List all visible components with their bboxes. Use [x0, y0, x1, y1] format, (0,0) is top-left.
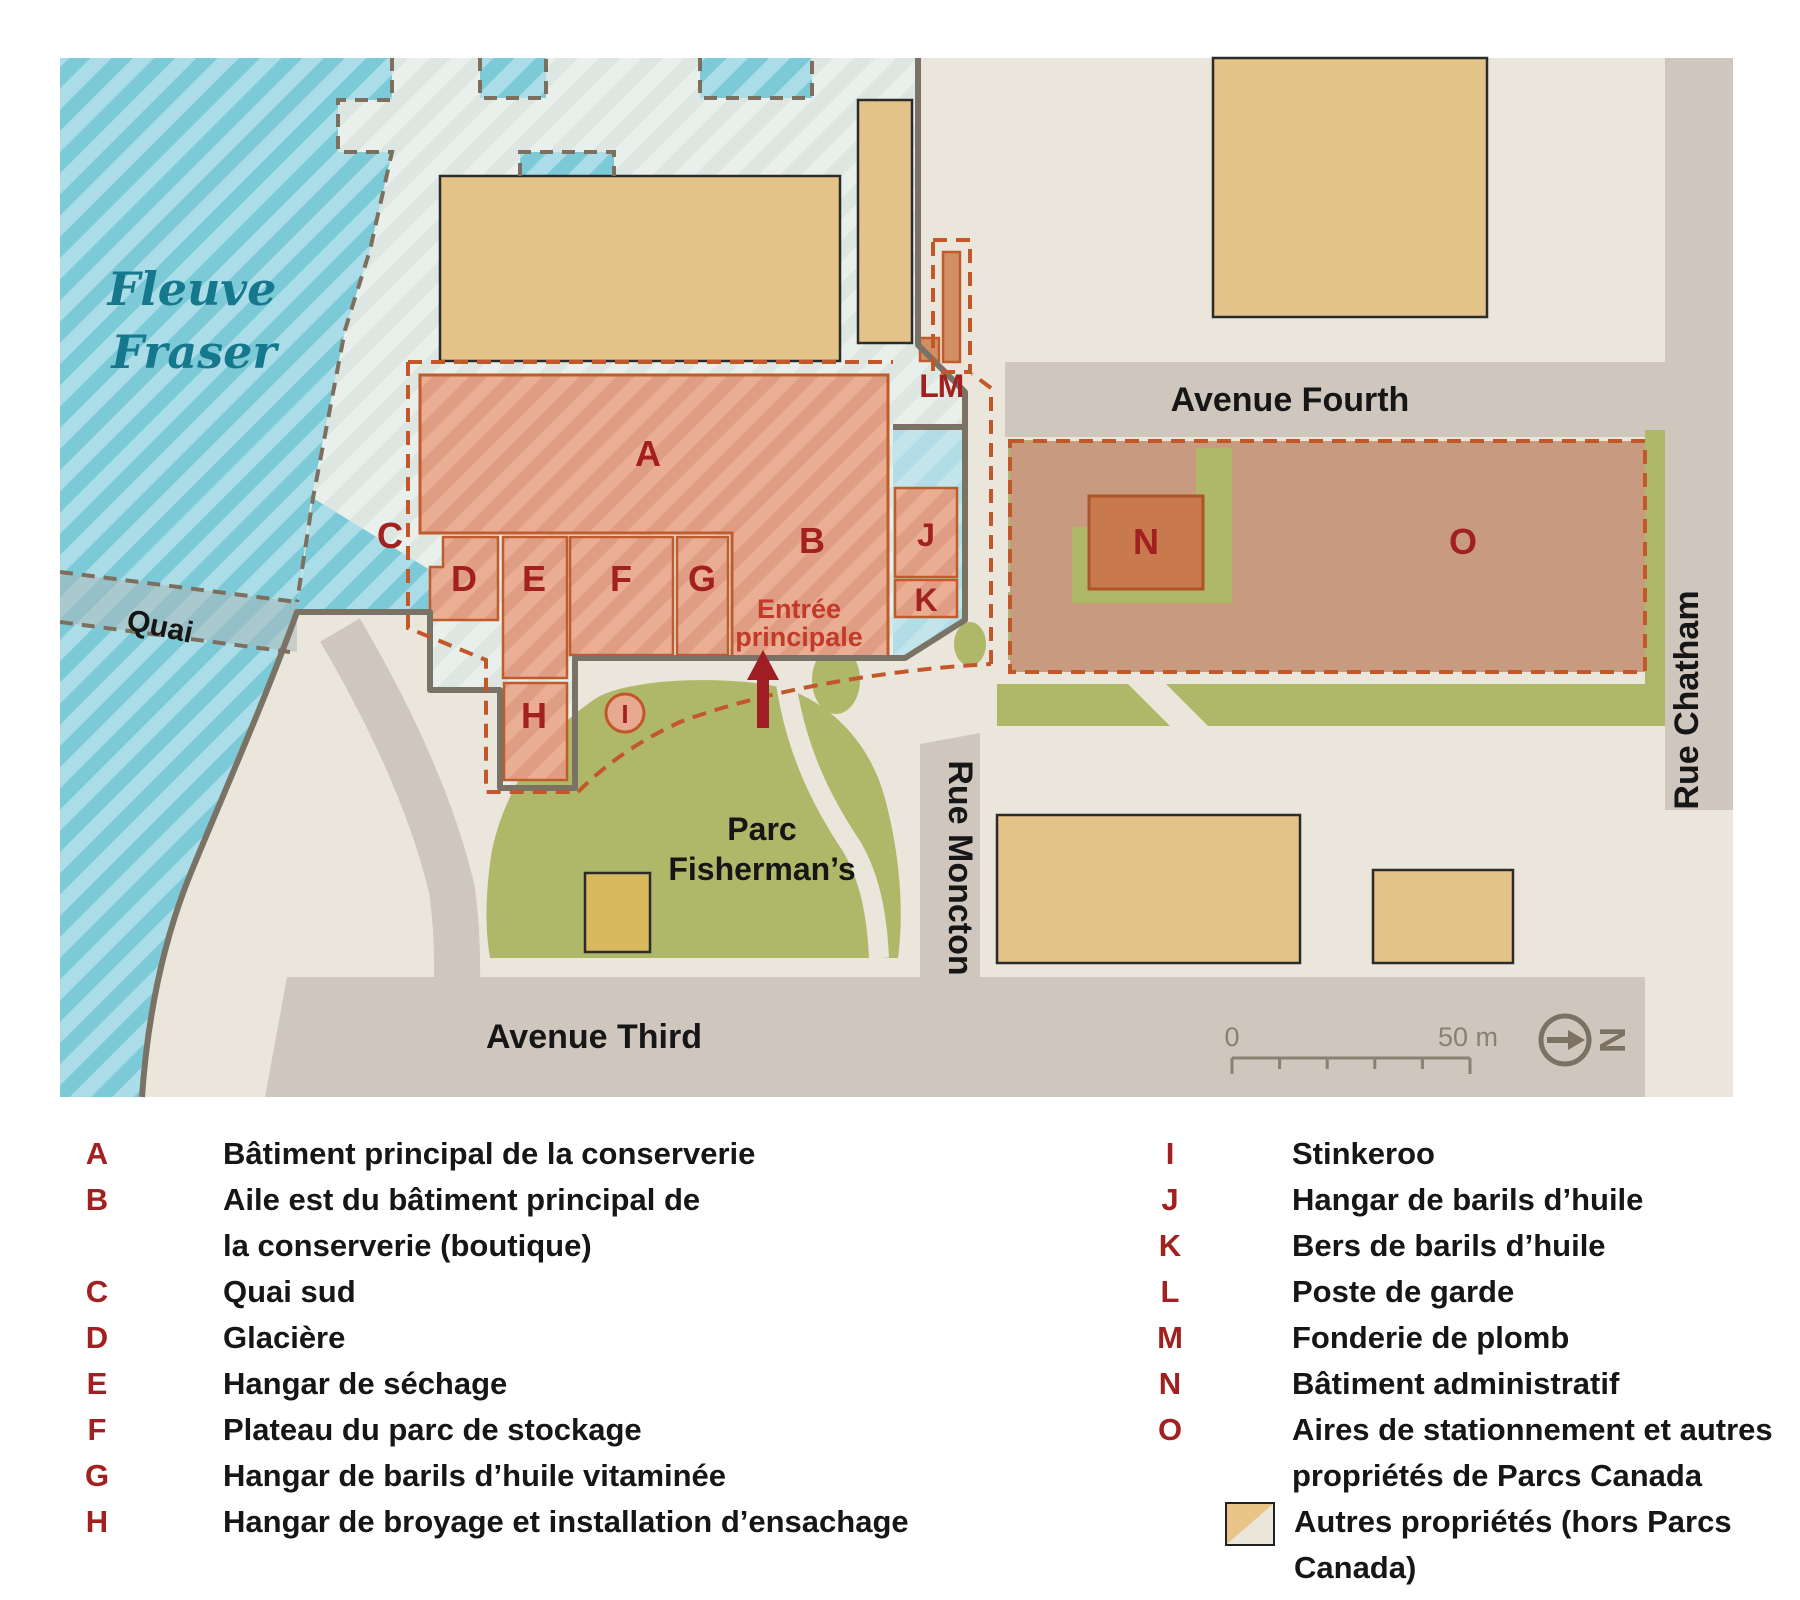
letter-f: F: [610, 558, 632, 599]
letter-b: B: [799, 520, 825, 561]
letter-g: G: [688, 558, 716, 599]
letter-i: I: [621, 699, 628, 729]
street-label-third: Avenue Third: [486, 1018, 702, 1056]
legend-text: Bâtiment principal de la conserverie: [223, 1131, 755, 1177]
legend-letter: D: [68, 1315, 126, 1361]
letter-e: E: [522, 558, 546, 599]
legend-item-c: C Quai sud: [68, 1269, 1088, 1315]
legend-item-o: O Aires de stationnement et autrespropri…: [1145, 1407, 1785, 1499]
letter-d: D: [451, 558, 477, 599]
water-lot-patch: [480, 58, 546, 98]
legend-letter: E: [68, 1361, 126, 1407]
green-blob: [954, 622, 986, 666]
letter-m: M: [938, 368, 965, 404]
legend-text: Hangar de séchage: [223, 1361, 507, 1407]
scale-start-label: 0: [1224, 1022, 1239, 1052]
legend-item-h: H Hangar de broyage et installation d’en…: [68, 1499, 1088, 1545]
legend-item-e: E Hangar de séchage: [68, 1361, 1088, 1407]
park-label-line2: Fisherman’s: [668, 851, 855, 887]
entrance-label-line1: Entrée: [757, 594, 841, 624]
legend-left-column: A Bâtiment principal de la conserverie B…: [68, 1131, 1088, 1545]
green-band: [997, 684, 1665, 726]
legend-right-column: I Stinkeroo J Hangar de barils d’huile K…: [1145, 1131, 1785, 1591]
legend-text: Poste de garde: [1292, 1269, 1514, 1315]
river-label-line1: Fleuve: [106, 262, 277, 316]
letter-a: A: [635, 433, 661, 474]
legend-item-l: L Poste de garde: [1145, 1269, 1785, 1315]
other-building: [997, 815, 1300, 963]
scale-end-label: 50 m: [1438, 1022, 1498, 1052]
legend-item-m: M Fonderie de plomb: [1145, 1315, 1785, 1361]
legend-item-g: G Hangar de barils d’huile vitaminée: [68, 1453, 1088, 1499]
legend-letter: C: [68, 1269, 126, 1315]
street-label-fourth: Avenue Fourth: [1171, 381, 1410, 419]
legend-text-line2: propriétés de Parcs Canada: [1292, 1453, 1773, 1499]
legend-text: Hangar de broyage et installation d’ensa…: [223, 1499, 909, 1545]
legend-item-j: J Hangar de barils d’huile: [1145, 1177, 1785, 1223]
legend-text: Bers de barils d’huile: [1292, 1223, 1606, 1269]
entrance-label-line2: principale: [735, 622, 863, 652]
legend-letter: G: [68, 1453, 126, 1499]
legend-item-b: B Aile est du bâtiment principal dela co…: [68, 1177, 1088, 1269]
legend-letter: B: [68, 1177, 126, 1223]
street-label-chatham: Rue Chatham: [1668, 590, 1706, 809]
legend-letter: L: [1145, 1269, 1195, 1315]
legend-item-i: I Stinkeroo: [1145, 1131, 1785, 1177]
legend-text: Plateau du parc de stockage: [223, 1407, 642, 1453]
legend-item-k: K Bers de barils d’huile: [1145, 1223, 1785, 1269]
legend-text: Aires de stationnement et autres: [1292, 1407, 1773, 1453]
legend-text: Autres propriétés (hors Parcs Canada): [1294, 1499, 1785, 1591]
legend-text: Hangar de barils d’huile vitaminée: [223, 1453, 726, 1499]
green-strip: [1072, 527, 1089, 572]
letter-o: O: [1449, 521, 1477, 562]
legend-letter: J: [1145, 1177, 1195, 1223]
park-building: [585, 873, 650, 952]
legend-text: Glacière: [223, 1315, 345, 1361]
street-label-moncton: Rue Moncton: [941, 760, 979, 975]
legend-text-line2: la conserverie (boutique): [223, 1223, 700, 1269]
legend-text: Stinkeroo: [1292, 1131, 1435, 1177]
letter-h: H: [521, 695, 547, 736]
letter-l: L: [919, 368, 939, 404]
legend-letter: F: [68, 1407, 126, 1453]
building-m: [943, 252, 960, 362]
green-strip: [1645, 430, 1665, 687]
legend-text: Bâtiment administratif: [1292, 1361, 1619, 1407]
legend-item-d: D Glacière: [68, 1315, 1088, 1361]
other-building: [858, 100, 912, 343]
legend-letter: N: [1145, 1361, 1195, 1407]
legend-letter: O: [1145, 1407, 1195, 1453]
legend-text: Quai sud: [223, 1269, 356, 1315]
legend-letter: M: [1145, 1315, 1195, 1361]
letter-j: J: [917, 517, 935, 553]
legend-letter: A: [68, 1131, 126, 1177]
legend-item-f: F Plateau du parc de stockage: [68, 1407, 1088, 1453]
legend-text: Fonderie de plomb: [1292, 1315, 1569, 1361]
legend-letter: K: [1145, 1223, 1195, 1269]
other-building: [1213, 58, 1487, 317]
legend-item-a: A Bâtiment principal de la conserverie: [68, 1131, 1088, 1177]
other-properties-swatch-icon: [1225, 1502, 1275, 1546]
legend-text: Hangar de barils d’huile: [1292, 1177, 1643, 1223]
water-lot-patch: [700, 58, 812, 98]
letter-n: N: [1133, 521, 1159, 562]
other-building: [1373, 870, 1513, 963]
legend-item-other-properties: Autres propriétés (hors Parcs Canada): [1225, 1499, 1785, 1591]
river-label-line2: Fraser: [109, 325, 280, 379]
page: Fleuve Fraser Quai Avenue Fourth Avenue …: [0, 0, 1800, 1600]
legend-letter: H: [68, 1499, 126, 1545]
legend-letter: I: [1145, 1131, 1195, 1177]
other-building: [440, 176, 840, 361]
north-letter: N: [1592, 1027, 1633, 1053]
legend-text: Aile est du bâtiment principal de: [223, 1177, 700, 1223]
water-lot-patch: [520, 152, 614, 176]
letter-c: C: [377, 515, 403, 556]
letter-k: K: [914, 582, 937, 618]
legend-item-n: N Bâtiment administratif: [1145, 1361, 1785, 1407]
park-label-line1: Parc: [727, 811, 796, 847]
